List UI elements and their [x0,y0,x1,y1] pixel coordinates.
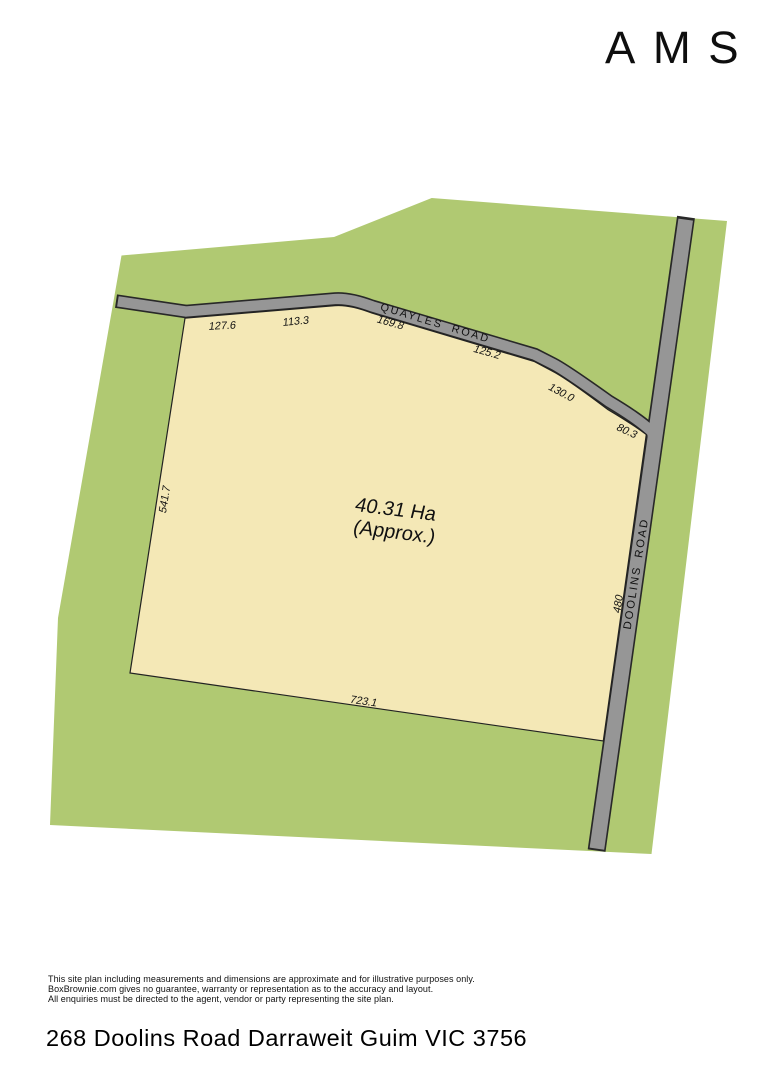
svg-text:127.6: 127.6 [208,320,237,333]
